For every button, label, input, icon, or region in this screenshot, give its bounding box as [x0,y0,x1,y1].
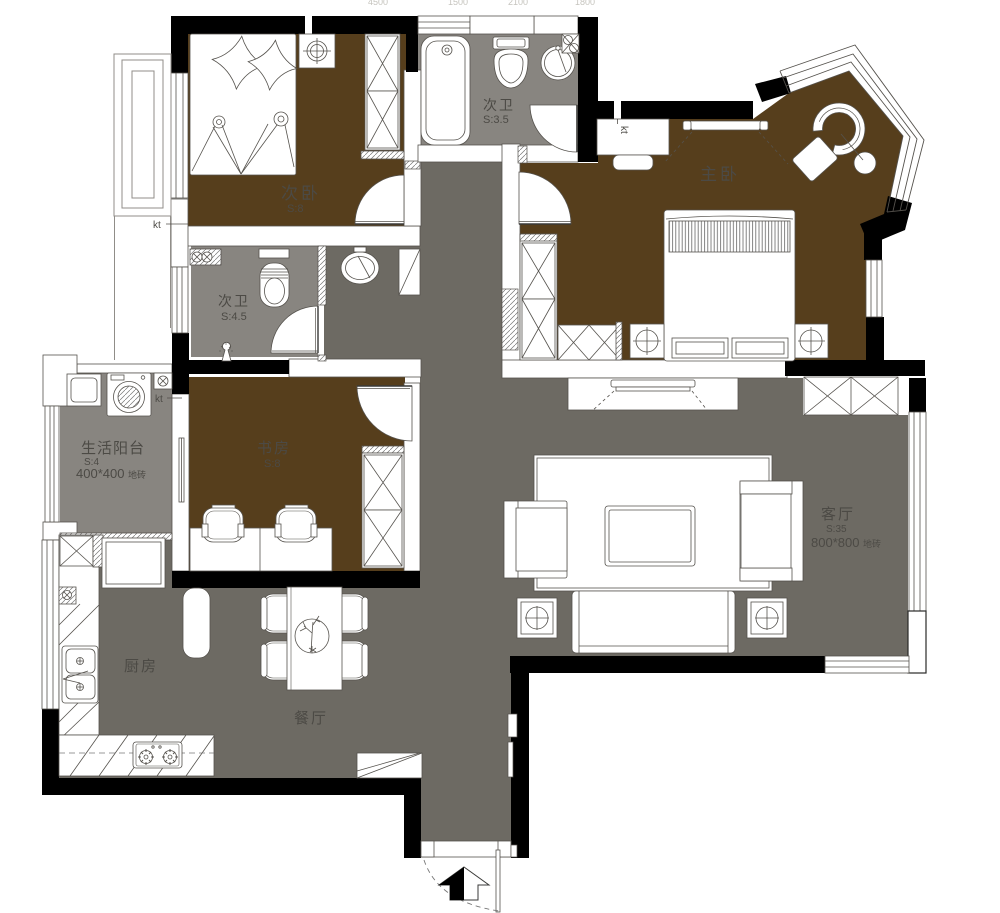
svg-text:书房: 书房 [257,440,291,457]
svg-text:kt: kt [618,126,629,134]
svg-text:S:35: S:35 [826,524,847,535]
svg-text:4500: 4500 [368,0,388,7]
svg-text:S:8: S:8 [287,203,304,215]
svg-text:主卧: 主卧 [700,165,740,184]
svg-text:1800: 1800 [575,0,595,7]
svg-text:400*400: 400*400 [76,466,124,481]
svg-text:次卧: 次卧 [281,184,321,203]
svg-text:厨房: 厨房 [124,658,158,675]
svg-text:kt: kt [153,220,161,231]
svg-text:次卫: 次卫 [483,97,515,113]
svg-text:kt: kt [155,394,163,405]
svg-text:1500: 1500 [448,0,468,7]
svg-text:客厅: 客厅 [821,506,855,523]
svg-text:2100: 2100 [508,0,528,7]
svg-text:S:3.5: S:3.5 [483,114,509,126]
svg-text:地砖: 地砖 [128,469,146,480]
svg-text:餐厅: 餐厅 [294,710,328,727]
svg-text:S:4.5: S:4.5 [221,311,247,323]
svg-text:S:8: S:8 [264,458,281,470]
svg-text:次卫: 次卫 [218,293,250,309]
svg-text:800*800: 800*800 [811,535,859,550]
svg-text:地砖: 地砖 [863,538,881,549]
svg-text:生活阳台: 生活阳台 [81,440,145,457]
